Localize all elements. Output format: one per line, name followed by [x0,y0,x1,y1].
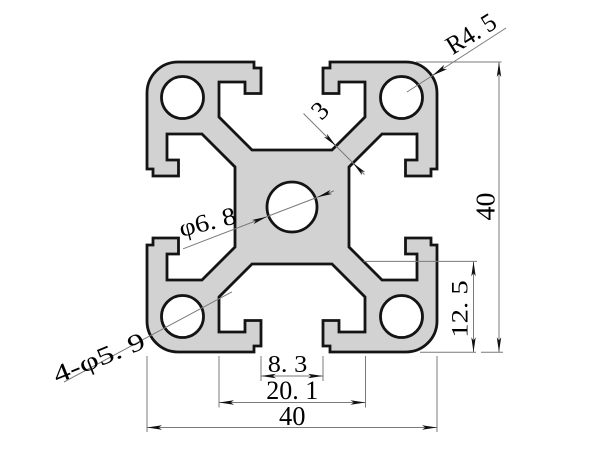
svg-text:8. 3: 8. 3 [268,352,308,378]
svg-text:3: 3 [305,96,335,126]
svg-text:40: 40 [471,193,501,221]
svg-text:φ6. 8: φ6. 8 [176,203,239,243]
svg-text:12. 5: 12. 5 [448,280,473,338]
svg-text:40: 40 [279,401,306,431]
svg-text:4-φ5. 9: 4-φ5. 9 [49,328,149,389]
svg-text:R4. 5: R4. 5 [440,7,501,60]
